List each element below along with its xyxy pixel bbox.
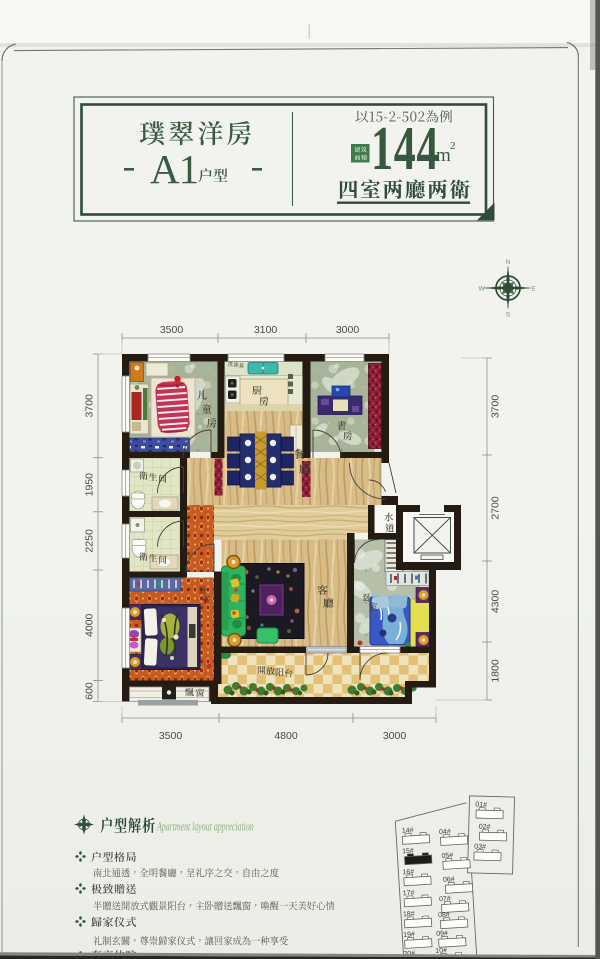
svg-text:1950: 1950 <box>84 473 96 497</box>
svg-text:W: W <box>478 286 485 293</box>
svg-text:3000: 3000 <box>336 324 360 336</box>
svg-text:N: N <box>506 259 511 266</box>
svg-text:600: 600 <box>84 682 96 700</box>
svg-text:S: S <box>506 312 511 319</box>
svg-text:4000: 4000 <box>84 613 96 637</box>
svg-text:E: E <box>531 286 536 293</box>
svg-text:3100: 3100 <box>254 324 278 336</box>
svg-text:3700: 3700 <box>490 395 502 419</box>
svg-text:3500: 3500 <box>159 730 183 742</box>
svg-text:4300: 4300 <box>490 590 502 614</box>
svg-text:1800: 1800 <box>490 659 502 683</box>
svg-text:m: m <box>436 145 451 166</box>
svg-text:3700: 3700 <box>84 394 96 418</box>
svg-text:Apartment layout appreciation: Apartment layout appreciation <box>156 821 253 834</box>
svg-text:3000: 3000 <box>383 730 407 742</box>
svg-text:2700: 2700 <box>490 496 502 520</box>
svg-text:2250: 2250 <box>84 529 96 553</box>
svg-text:2: 2 <box>450 140 456 152</box>
svg-text:4800: 4800 <box>274 730 298 742</box>
svg-text:A1: A1 <box>150 146 198 192</box>
svg-text:144: 144 <box>371 114 439 183</box>
svg-text:3500: 3500 <box>160 324 184 336</box>
